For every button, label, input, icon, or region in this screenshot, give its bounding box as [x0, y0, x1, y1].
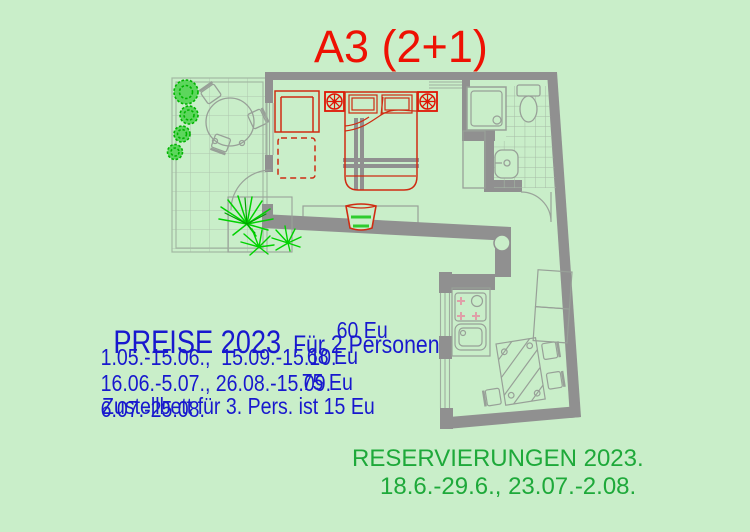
dining-chair [546, 371, 564, 389]
extra-bed-note: Zustellbett für 3. Pers. ist 15 Eu [102, 393, 375, 420]
stove-icon [455, 293, 486, 321]
bush-icon [174, 80, 198, 104]
bush-icon [168, 145, 183, 160]
bathroom-sink-icon [495, 150, 518, 178]
ceiling-fan-icon [325, 92, 344, 111]
window-marker-kitchen-2 [441, 359, 450, 408]
price-amount: 75 Eu [302, 369, 353, 396]
reservations-dates: 18.6.-29.6., 23.07.-2.08. [380, 473, 636, 501]
dining-table-icon [496, 338, 545, 405]
price-row: 6.07.-25.08. 75 Eu [68, 369, 205, 477]
dining-chair [483, 388, 501, 406]
bush-icon [174, 126, 190, 142]
kitchen [452, 270, 572, 409]
bush-icon [180, 106, 198, 124]
ceiling-fan-icon [418, 92, 437, 111]
plant-pot-icon [346, 204, 376, 230]
water-heater [494, 235, 510, 251]
shower-icon [467, 87, 506, 130]
door-arc-bathroom [521, 192, 551, 222]
window-marker-top [429, 82, 462, 88]
sofa-icon [275, 91, 319, 132]
reservations-heading: RESERVIERUNGEN 2023. [352, 445, 644, 473]
price-amount: 68 Eu [307, 343, 358, 370]
price-amount: 60 Eu [337, 317, 388, 344]
advertisement-page: A3 (2+1) [0, 0, 750, 532]
window-marker-kitchen-1 [441, 293, 450, 336]
kitchen-sink-icon [455, 324, 486, 350]
sofa-bed-outline [278, 138, 315, 178]
dining-chair [542, 341, 560, 359]
